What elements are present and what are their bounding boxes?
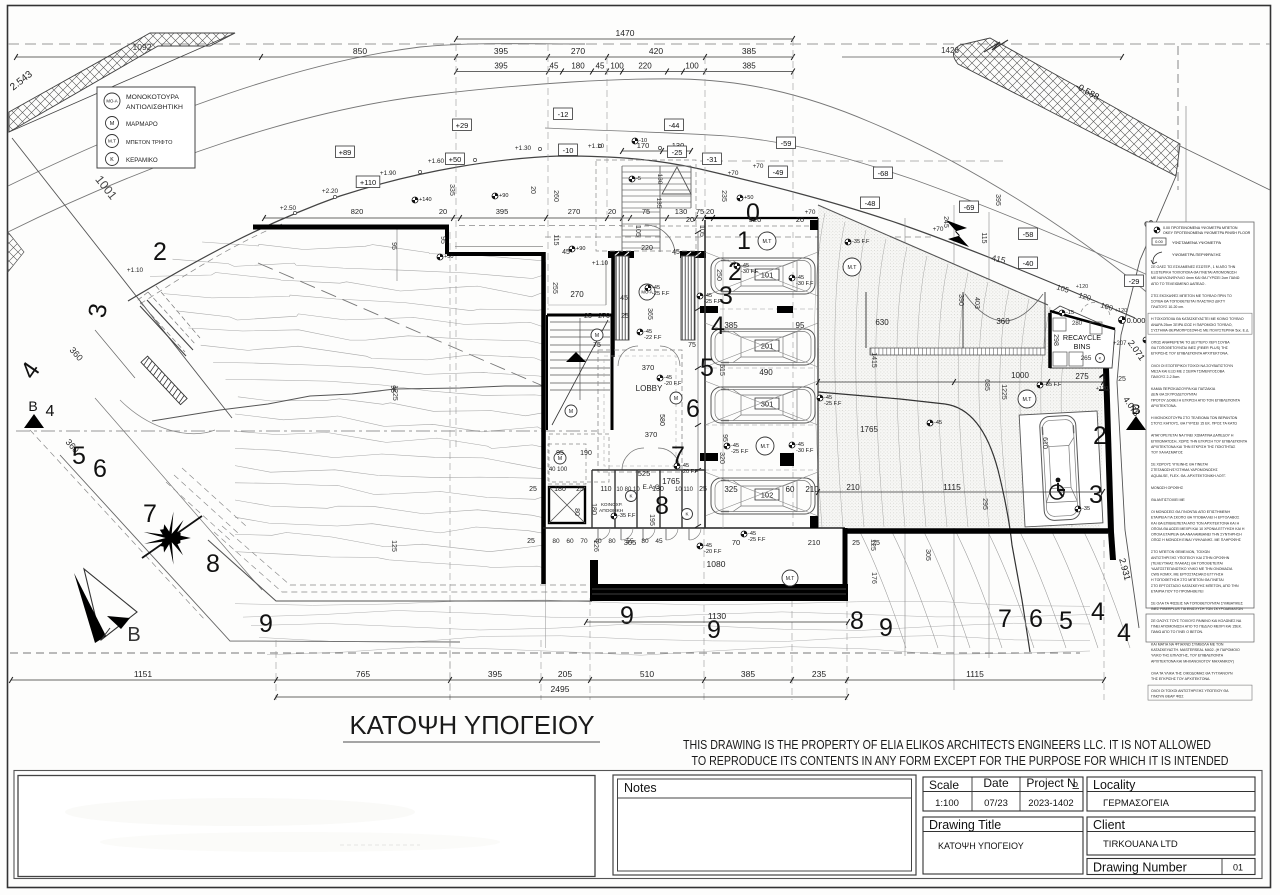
- svg-text:+1.10: +1.10: [127, 267, 144, 274]
- svg-text:ΚΟΙΝΟΧΡ.: ΚΟΙΝΟΧΡ.: [601, 502, 622, 507]
- svg-text:1765: 1765: [860, 425, 878, 434]
- svg-text:295: 295: [981, 498, 988, 510]
- svg-text:-25 F.F: -25 F.F: [748, 537, 766, 543]
- svg-text:M: M: [595, 333, 599, 339]
- svg-text:370: 370: [642, 363, 655, 372]
- svg-text:45: 45: [620, 295, 628, 302]
- svg-text:+70: +70: [753, 163, 764, 170]
- svg-text:210: 210: [846, 483, 860, 492]
- svg-text:K: K: [1099, 355, 1102, 360]
- svg-text:MO-A: MO-A: [106, 99, 117, 104]
- svg-text:220: 220: [641, 245, 653, 252]
- svg-text:M: M: [674, 396, 678, 402]
- svg-text:1: 1: [1097, 369, 1111, 397]
- svg-text:4: 4: [711, 312, 725, 340]
- svg-text:520: 520: [749, 215, 762, 224]
- svg-text:1225: 1225: [1000, 384, 1007, 400]
- svg-text:ΓΕΡΜΑΣΟΓΕΙΑ: ΓΕΡΜΑΣΟΓΕΙΑ: [1103, 798, 1170, 809]
- svg-text:95: 95: [390, 242, 397, 250]
- svg-text:490: 490: [759, 368, 773, 377]
- svg-text:ΑΡΧΙΤΕΚΤΟΝΑ.: ΑΡΧΙΤΕΚΤΟΝΑ.: [1151, 404, 1177, 408]
- svg-text:ΓΙΝΟΥΝ ΘΕΑΡ ΦΩΣ: ΓΙΝΟΥΝ ΘΕΑΡ ΦΩΣ: [1151, 695, 1184, 699]
- svg-text:75: 75: [696, 207, 704, 216]
- svg-text:+1.30: +1.30: [515, 145, 532, 152]
- svg-text:395: 395: [496, 207, 509, 216]
- svg-text:1151: 1151: [134, 669, 153, 679]
- svg-text:1225: 1225: [391, 385, 398, 401]
- svg-text:5: 5: [72, 442, 86, 470]
- svg-text:+90: +90: [499, 193, 509, 199]
- svg-text:BINS: BINS: [1074, 342, 1091, 351]
- svg-text:ΟΠΩΣ Η ΜΟΝΩΣΗ ΕΙΝΑΙ ΥΨΗΛΑΝΗΣ.: ΟΠΩΣ Η ΜΟΝΩΣΗ ΕΙΝΑΙ ΥΨΗΛΑΝΗΣ. ΜΕ ΠΛΗΡΟΦΗ…: [1151, 538, 1242, 542]
- svg-text:ΣΤΙΣ ΕΚΣΚΑΦΕΣ ΜΠΕΤΟΝ ΜΕ ΤΟΥΒΛ: ΣΤΙΣ ΕΚΣΚΑΦΕΣ ΜΠΕΤΟΝ ΜΕ ΤΟΥΒΛΟ ΠΡΙΝ ΤΟ: [1151, 294, 1232, 298]
- svg-text:M.T: M.T: [108, 139, 116, 144]
- svg-text:115: 115: [980, 232, 987, 243]
- svg-text:ΠΡΟΤΟΥ ΔΟΘΕΙ Η ΕΓΚΡΙΣΗ ΑΠΟ ΤΟ: ΠΡΟΤΟΥ ΔΟΘΕΙ Η ΕΓΚΡΙΣΗ ΑΠΟ ΤΟΝ ΕΠΙΒΛΕΠΟΝ…: [1151, 398, 1241, 402]
- svg-text:180: 180: [590, 503, 597, 515]
- svg-text:ΤΗΣ ΕΓΚΡΙΣΗΣ ΤΟΥ ΑΡΧΙΤΕΚΤΟΝΑ.: ΤΗΣ ΕΓΚΡΙΣΗΣ ΤΟΥ ΑΡΧΙΤΕΚΤΟΝΑ.: [1151, 677, 1210, 681]
- svg-text:270: 270: [568, 207, 581, 216]
- svg-text:ΜΟΝΟΚΟΤΟΥΡΑ: ΜΟΝΟΚΟΤΟΥΡΑ: [126, 94, 179, 101]
- svg-text:20: 20: [686, 215, 694, 224]
- svg-text:105: 105: [634, 225, 641, 237]
- svg-text:ΣΤΟ ΜΠΕΤΟΝ ΘΕΜΕΛΙΩΝ, ΤΟΙΧΩΝ: ΣΤΟ ΜΠΕΤΟΝ ΘΕΜΕΛΙΩΝ, ΤΟΙΧΩΝ: [1151, 550, 1210, 554]
- svg-text:80: 80: [552, 538, 560, 545]
- svg-text:390: 390: [957, 294, 964, 306]
- svg-text:-22 F.F: -22 F.F: [644, 335, 662, 341]
- svg-text:-68: -68: [878, 169, 889, 178]
- svg-text:ΙΝΕΣ FIBERPLUS ΓΙΑ ΕΝΙΣΧΥΣΗ: ΙΝΕΣ FIBERPLUS ΓΙΑ ΕΝΙΣΧΥΣΗ ΤΩΝ ΣΚΥΡΟΔΕΜ…: [1151, 607, 1243, 611]
- svg-text:+140: +140: [419, 197, 432, 203]
- svg-text:B: B: [28, 398, 37, 414]
- svg-text:176: 176: [870, 572, 877, 584]
- svg-text:395: 395: [494, 62, 508, 71]
- svg-text:20: 20: [608, 207, 616, 216]
- svg-text:360: 360: [996, 317, 1010, 326]
- svg-text:Scale: Scale: [929, 778, 959, 792]
- svg-text:B: B: [1131, 401, 1140, 417]
- svg-text:ΑΡΧΙΤΕΚΤΟΝΑ ΚΑΙ ΤΗΝ ΕΓΚΡΙΣΗ ΤΗ: ΑΡΧΙΤΕΚΤΟΝΑ ΚΑΙ ΤΗΝ ΕΓΚΡΙΣΗ ΤΗΣ ΠΟΙΟΤΗΤΑ…: [1151, 445, 1236, 449]
- svg-text:ΘΑ ΑΝΤΙΣΤΟΙΧΕΙ ΜΕ: ΘΑ ΑΝΤΙΣΤΟΙΧΕΙ ΜΕ: [1151, 498, 1185, 502]
- svg-text:-58: -58: [1023, 230, 1034, 239]
- svg-text:ΣΕ ΟΛΟΥΣ ΤΟΥΣ ΤΟΙΧΟΥΣ ΡΑΙΝΙΝ: ΣΕ ΟΛΟΥΣ ΤΟΥΣ ΤΟΙΧΟΥΣ ΡΑΙΝΙΝΟ ΚΑΙ ΚΟΛΩΝΕ…: [1151, 619, 1242, 623]
- svg-text:ΟΠΟΙΑ ΘΑ ΔΩΣΕΙ ΜΕΧΡΙ ΚΑΙ 10 ΧΡ: ΟΠΟΙΑ ΘΑ ΔΩΣΕΙ ΜΕΧΡΙ ΚΑΙ 10 ΧΡΟΝΙΑ ΕΓΓΥΗ…: [1151, 527, 1245, 531]
- svg-text:8: 8: [850, 607, 864, 635]
- svg-text:25: 25: [1118, 376, 1126, 383]
- svg-text:8: 8: [655, 492, 669, 520]
- svg-text:25: 25: [529, 486, 537, 493]
- svg-text:100: 100: [685, 62, 699, 71]
- svg-text:ΠΑΧΟΥΣ 2-2.5cm.: ΠΑΧΟΥΣ 2-2.5cm.: [1151, 375, 1180, 379]
- svg-text:-25 F.F: -25 F.F: [652, 291, 670, 297]
- svg-text:ΟΙ ΜΟΝΩΣΕΙΣ ΘΑ ΓΙΝΟΝΤΑΙ ΑΠΟ ΕΠ: ΟΙ ΜΟΝΩΣΕΙΣ ΘΑ ΓΙΝΟΝΤΑΙ ΑΠΟ ΕΠΙΣΤΗΜΕΝΗ: [1151, 510, 1230, 514]
- svg-text:ΣΕ ΟΛΕΣ ΤΙΣ ΕΣΚΑΜΕΝΕΣ ΕΣΩΤΕΡ.,: ΣΕ ΟΛΕΣ ΤΙΣ ΕΣΚΑΜΕΝΕΣ ΕΣΩΤΕΡ., 1 Μ ΑΠΟ Τ…: [1151, 265, 1236, 269]
- svg-text:+89: +89: [339, 148, 352, 157]
- svg-text:20: 20: [706, 207, 714, 216]
- svg-text:TO REPRODUCE ITS CONTENTS IN A: TO REPRODUCE ITS CONTENTS IN ANY FORM EX…: [692, 753, 1229, 768]
- svg-text:ΥΛΙΚΟ ΤΗΣ ΕΠΙΛΟΓΗΣ, ΤΟΥ ΕΠΙΒ: ΥΛΙΚΟ ΤΗΣ ΕΠΙΛΟΓΗΣ, ΤΟΥ ΕΠΙΒΛΕΠΟΝΤΑ: [1151, 654, 1224, 658]
- svg-text:+1.10: +1.10: [592, 260, 609, 267]
- svg-text:0.00 ΠΡΟΤΕΙΝΟΜΕΝΑ ΥΨΟΜΕΤΡΑ ΜΠ: 0.00 ΠΡΟΤΕΙΝΟΜΕΝΑ ΥΨΟΜΕΤΡΑ ΜΠΕΤΟΝ: [1163, 226, 1238, 230]
- svg-text:1080: 1080: [707, 559, 726, 569]
- svg-text:75: 75: [642, 207, 650, 216]
- svg-text:95: 95: [556, 450, 564, 457]
- svg-text:370: 370: [645, 430, 658, 439]
- svg-text:100: 100: [610, 62, 624, 71]
- svg-text:40 100: 40 100: [549, 467, 568, 473]
- svg-text:3: 3: [1089, 481, 1103, 509]
- svg-text:510: 510: [640, 669, 654, 679]
- svg-text:20: 20: [796, 215, 804, 224]
- svg-text:1426: 1426: [941, 46, 959, 55]
- svg-text:70: 70: [580, 538, 588, 545]
- svg-text:1000: 1000: [1011, 371, 1029, 380]
- svg-text:ΘΑ ΤΟΠΟΘΕΤΟΥΝΤΑΙ ΙΝΕΣ (FIBER P: ΘΑ ΤΟΠΟΘΕΤΟΥΝΤΑΙ ΙΝΕΣ (FIBER PLUS) ΤΗΣ: [1151, 346, 1229, 350]
- svg-text:70: 70: [732, 538, 740, 547]
- svg-text:20: 20: [529, 186, 536, 194]
- svg-text:ΕΓΚΡΙΣΗΣ ΤΟΥ ΕΠΙΒΛΕΠΟΝΤΑ ΑΡΧΙΤ: ΕΓΚΡΙΣΗΣ ΤΟΥ ΕΠΙΒΛΕΠΟΝΤΑ ΑΡΧΙΤΕΚΤΟΝΑ.: [1151, 352, 1228, 356]
- svg-text:-25 F.F: -25 F.F: [824, 401, 842, 407]
- svg-text:+90: +90: [576, 246, 586, 252]
- svg-text:ΠΑΝΩ ΑΠΟ ΤΟ ΓΙΝΕΙ Ο ΒΕΤΟΝ.: ΠΑΝΩ ΑΠΟ ΤΟ ΓΙΝΕΙ Ο ΒΕΤΟΝ.: [1151, 630, 1203, 634]
- svg-text:4: 4: [1117, 619, 1131, 647]
- svg-text:45: 45: [562, 249, 570, 256]
- svg-text:-48: -48: [865, 199, 876, 208]
- svg-text:6: 6: [93, 455, 107, 483]
- svg-text:5: 5: [1059, 607, 1073, 635]
- svg-text:280: 280: [1072, 321, 1083, 327]
- svg-text:3: 3: [719, 282, 733, 310]
- svg-text:110: 110: [600, 486, 611, 493]
- svg-text:685: 685: [983, 379, 990, 391]
- svg-text:403: 403: [973, 297, 980, 309]
- svg-text:01: 01: [1233, 863, 1243, 873]
- svg-text:1765: 1765: [662, 477, 680, 486]
- svg-text:ΑΠΑΓΟΡΕΥΕΤΑΙ ΝΑ ΓΙΝΕΙ ΧΩΜΑΤΙΝΑ: ΑΠΑΓΟΡΕΥΕΤΑΙ ΝΑ ΓΙΝΕΙ ΧΩΜΑΤΙΝΑ ΔΑΠΕΔΟΥ Η: [1151, 434, 1234, 438]
- svg-text:385: 385: [742, 62, 756, 71]
- svg-text:Drawing Title: Drawing Title: [929, 818, 1001, 832]
- svg-text:ΕΞΩΤΕΡΙΚΗ ΤΟΙΧΟΠΟΙΙΑ ΘΑ ΓΙΝΕΤΑ: ΕΞΩΤΕΡΙΚΗ ΤΟΙΧΟΠΟΙΙΑ ΘΑ ΓΙΝΕΤΑΙ ΑΠΟΜΟΝΩΣ…: [1151, 271, 1237, 275]
- svg-text:630: 630: [875, 318, 889, 327]
- svg-text:ΑΠΟ ΤΟ ΤΕΛΕΙΩΜΕΝΟ ΔΑΠΕΔΟ .: ΑΠΟ ΤΟ ΤΕΛΕΙΩΜΕΝΟ ΔΑΠΕΔΟ .: [1151, 282, 1206, 286]
- svg-text:ΣΤΟ ΕΡΓΟΣΤΑΣΙΟ ΚΑΤΑΣΚΕΥΗΣ ΜΠΕΤ: ΣΤΟ ΕΡΓΟΣΤΑΣΙΟ ΚΑΤΑΣΚΕΥΗΣ ΜΠΕΤΟΝ, ΑΠΟ ΤΗ…: [1151, 584, 1239, 588]
- svg-text:180: 180: [554, 486, 566, 493]
- svg-text:1115: 1115: [943, 482, 961, 492]
- svg-text:80: 80: [573, 508, 580, 516]
- svg-text:ΚΑΙ ΘΑ ΕΠΙΒΛΕΠΕΤΑΙ ΑΠΟ ΤΟΝ ΑΡΧ: ΚΑΙ ΘΑ ΕΠΙΒΛΕΠΕΤΑΙ ΑΠΟ ΤΟΝ ΑΡΧΙΤΕΚΤΟΝΑ Κ…: [1151, 521, 1240, 525]
- svg-text:1: 1: [737, 227, 751, 255]
- svg-text:250: 250: [715, 269, 722, 281]
- svg-text:245: 245: [942, 216, 949, 228]
- svg-text:ΜΠΕΤΟΝ ΤΡΙΦΤΟ: ΜΠΕΤΟΝ ΤΡΙΦΤΟ: [126, 140, 173, 146]
- svg-text:2: 2: [1093, 422, 1107, 450]
- svg-text:-40: -40: [1023, 259, 1034, 268]
- svg-text:+50: +50: [744, 195, 754, 201]
- svg-text:385: 385: [741, 669, 755, 679]
- svg-text:Locality: Locality: [1093, 778, 1136, 792]
- svg-text:-35 F.F: -35 F.F: [852, 239, 870, 245]
- svg-text:+50: +50: [449, 155, 462, 164]
- svg-text:7: 7: [143, 500, 157, 528]
- svg-text:-44: -44: [669, 121, 680, 130]
- svg-text:305: 305: [624, 538, 637, 547]
- svg-text:275: 275: [1075, 372, 1089, 381]
- svg-text:+1.60: +1.60: [428, 158, 445, 165]
- svg-text:305: 305: [924, 549, 931, 561]
- svg-text:ΜΑΡΜΑΡΟ: ΜΑΡΜΑΡΟ: [126, 121, 158, 128]
- svg-text:4: 4: [1091, 598, 1105, 626]
- svg-text:M.T: M.T: [848, 265, 858, 271]
- svg-text:+1.90: +1.90: [380, 170, 397, 177]
- svg-text:75: 75: [688, 342, 696, 349]
- svg-text:Project N: Project N: [1026, 776, 1075, 790]
- svg-text:ΟΚΕΥ ΠΡΟΤΕΙΝΟΜΕΝΑ ΥΨΟΜΕΤΡΑ ΡΙ: ΟΚΕΥ ΠΡΟΤΕΙΝΟΜΕΝΑ ΥΨΟΜΕΤΡΑ ΡΙΝΙSΗ FLOOR: [1163, 231, 1251, 235]
- svg-text:THIS DRAWING IS THE PROPERTY O: THIS DRAWING IS THE PROPERTY OF ELIA ELI…: [683, 737, 1211, 752]
- svg-text:+110: +110: [360, 178, 376, 187]
- svg-text:95: 95: [796, 321, 805, 330]
- svg-text:9: 9: [879, 614, 893, 642]
- svg-text:235: 235: [812, 669, 826, 679]
- svg-text:0.000: 0.000: [1127, 316, 1146, 325]
- svg-text:270: 270: [598, 313, 610, 320]
- svg-text:-20 F.F: -20 F.F: [704, 549, 722, 555]
- svg-text:M.T: M.T: [763, 239, 773, 245]
- svg-text:ΣΤΟΥΣ ΚΗΠΟΥΣ, ΘΑ ΓΥΡΙΣΕΙ 15 ΕΚ: ΣΤΟΥΣ ΚΗΠΟΥΣ, ΘΑ ΓΥΡΙΣΕΙ 15 ΕΚ. ΠΡΟΣ ΤΑ …: [1151, 422, 1237, 426]
- svg-text:395: 395: [494, 46, 508, 56]
- svg-text:+2.50: +2.50: [280, 205, 297, 212]
- svg-text:270: 270: [570, 290, 584, 299]
- svg-text:-10: -10: [639, 138, 647, 144]
- svg-text:1:100: 1:100: [935, 798, 959, 809]
- svg-text:25: 25: [699, 486, 707, 493]
- svg-text:LOBBY: LOBBY: [636, 384, 663, 393]
- svg-text:125: 125: [869, 539, 876, 551]
- svg-text:105: 105: [698, 225, 705, 237]
- svg-text:ΟΠΩΣ ΑΝΑΦΕΡΕΤΑΙ ΤΟ ΔΕΥΤΕΡΟ ΧΕΡ: ΟΠΩΣ ΑΝΑΦΕΡΕΤΑΙ ΤΟ ΔΕΥΤΕΡΟ ΧΕΡΙ ΣΟΥΒΑ: [1151, 341, 1230, 345]
- svg-text:-5: -5: [636, 176, 641, 182]
- svg-text:180: 180: [571, 62, 585, 71]
- svg-text:325: 325: [724, 485, 738, 494]
- svg-text:1130: 1130: [708, 611, 727, 621]
- svg-text:95: 95: [721, 434, 728, 442]
- svg-text:07/23: 07/23: [984, 798, 1008, 809]
- svg-text:235: 235: [720, 190, 727, 202]
- svg-text:Η ΤΟΠΟΘΕΤΗΣΗ ΣΤΟ ΜΠΕΤΟΝ ΘΑ ΓΙΝ: Η ΤΟΠΟΘΕΤΗΣΗ ΣΤΟ ΜΠΕΤΟΝ ΘΑ ΓΙΝΕΤΑΙ: [1151, 578, 1224, 582]
- svg-text:2495: 2495: [551, 684, 570, 694]
- svg-text:4: 4: [46, 403, 55, 420]
- svg-text:ΥΦΙΣΤΑΜΕΝΑ ΥΨΟΜΕΤΡΑ: ΥΦΙΣΤΑΜΕΝΑ ΥΨΟΜΕΤΡΑ: [1172, 240, 1221, 245]
- svg-text:9: 9: [620, 602, 634, 630]
- svg-text:820: 820: [351, 207, 364, 216]
- svg-text:10 110: 10 110: [675, 487, 694, 493]
- svg-text:60: 60: [566, 538, 574, 545]
- svg-text:80: 80: [641, 538, 649, 545]
- svg-text:M.T: M.T: [761, 444, 771, 450]
- svg-text:420: 420: [649, 46, 663, 56]
- svg-text:385: 385: [724, 321, 738, 330]
- svg-text:ΚΕΡΑΜΙΚΟ: ΚΕΡΑΜΙΚΟ: [126, 157, 158, 164]
- svg-text:5: 5: [700, 354, 714, 382]
- svg-text:2: 2: [153, 238, 167, 266]
- svg-text:ΣΥΣΤΗΜΑ ΘΕΡΜΟΠΡΟΣΟΨΗΣ ΜΕ ΠΟΛΥΣ: ΣΥΣΤΗΜΑ ΘΕΡΜΟΠΡΟΣΟΨΗΣ ΜΕ ΠΟΛΥΣΤΕΡΙΝΗ 5εκ…: [1151, 328, 1249, 332]
- svg-text:-30 F.F: -30 F.F: [796, 281, 814, 287]
- svg-text:190: 190: [580, 450, 592, 457]
- svg-text:M: M: [569, 409, 573, 415]
- svg-text:ΑΡΧΙΤΕΚΤΟΝΑ ΚΑΙ ΜΗΧΑΝΟΛΟΓΟΥ ΜΗ: ΑΡΧΙΤΕΚΤΟΝΑ ΚΑΙ ΜΗΧΑΝΟΛΟΓΟΥ ΜΗΧΑΝΙΚΟΥ): [1151, 659, 1234, 663]
- svg-text:125: 125: [390, 540, 397, 552]
- svg-text:ΟΠΟΙΑ ΕΤΑΙΡΕΙΑ ΘΑ ΑΝΑΛΑΜΒΑΝΕΙ: ΟΠΟΙΑ ΕΤΑΙΡΕΙΑ ΘΑ ΑΝΑΛΑΜΒΑΝΕΙ ΤΗΝ ΣΥΝΤΗΡ…: [1151, 533, 1242, 537]
- svg-text:M: M: [110, 121, 115, 127]
- svg-text:130: 130: [656, 174, 663, 185]
- svg-text:10 80 10: 10 80 10: [616, 487, 640, 493]
- svg-text:+120: +120: [1096, 386, 1108, 392]
- svg-text:850: 850: [353, 46, 367, 56]
- svg-text:ΥΔΑΤΟΣΤΕΓΑΝΩΤΙΚΟ ΥΛΙΚΟ ΜΕ ΤΗΝ: ΥΔΑΤΟΣΤΕΓΑΝΩΤΙΚΟ ΥΛΙΚΟ ΜΕ ΤΗΝ ΟΝΟΜΑΣΙΑ: [1151, 567, 1233, 571]
- svg-text:45: 45: [550, 62, 559, 71]
- svg-text:+207: +207: [1113, 341, 1127, 347]
- svg-text:130: 130: [652, 486, 664, 493]
- svg-text:ΟΛΟΙ ΟΙ ΤΟΙΧΟΙ ΑΝΤΙΣΤΗΡΙΞΗΣ ΥΠ: ΟΛΟΙ ΟΙ ΤΟΙΧΟΙ ΑΝΤΙΣΤΗΡΙΞΗΣ ΥΠΟΓΕΙΟΥ ΘΑ: [1151, 689, 1229, 693]
- svg-text:-25 F.F: -25 F.F: [731, 449, 749, 455]
- svg-text:-35: -35: [1082, 506, 1090, 512]
- svg-text:-20 F.F: -20 F.F: [681, 469, 699, 475]
- svg-text:ΣΕ ΧΩΡΟΥΣ ΥΓΙΕΙΝΗΣ ΘΑ ΓΙΝΕΤΑΙ: ΣΕ ΧΩΡΟΥΣ ΥΓΙΕΙΝΗΣ ΘΑ ΓΙΝΕΤΑΙ: [1151, 463, 1208, 467]
- svg-text:ΣΕ ΟΛΑ ΤΑ ΦΩΣΕΙΣ ΝΑ ΤΟΠΟΘΕΤΟΥΝ: ΣΕ ΟΛΑ ΤΑ ΦΩΣΕΙΣ ΝΑ ΤΟΠΟΘΕΤΟΥΝΤΑΙ ΣΥΜΒΑΤ…: [1151, 602, 1244, 606]
- svg-text:320: 320: [718, 452, 725, 464]
- svg-text:ΟΛΑ ΤΑ ΥΛΙΚΑ ΤΗΣ ΟΙΚΟΔΟΜΗΣ Θ: ΟΛΑ ΤΑ ΥΛΙΚΑ ΤΗΣ ΟΙΚΟΔΟΜΗΣ ΘΑ ΤΥΓΧΑΝΟΥΝ: [1151, 671, 1233, 675]
- svg-text:25: 25: [584, 313, 592, 320]
- svg-text:ΚΑΤΑΣΚΕΥΑΣΤΗ. MASTERSEAL Μ402: ΚΑΤΑΣΚΕΥΑΣΤΗ. MASTERSEAL Μ402. (Η ΠΑΡΟΜΟ…: [1151, 648, 1240, 652]
- svg-text:20: 20: [439, 207, 447, 216]
- svg-text:CWS ΚΟΜΙΧ. ΜΕ ΕΡΓΟΣΤΑΣΙΑΚΟ ΕΓ: CWS ΚΟΜΙΧ. ΜΕ ΕΡΓΟΣΤΑΣΙΑΚΟ ΕΓΓΥΗΣΗ: [1151, 573, 1224, 577]
- svg-text:195: 195: [648, 514, 655, 526]
- svg-text:+2.20: +2.20: [322, 188, 339, 195]
- svg-text:o: o: [1073, 779, 1078, 789]
- svg-text:(ΤΕΛΕΥΤΑΙΑΣ ΠΛΑΚΑΣ) ΘΑ ΤΟΠΟΘΕ: (ΤΕΛΕΥΤΑΙΑΣ ΠΛΑΚΑΣ) ΘΑ ΤΟΠΟΘΕΤΕΙΤΑΙ: [1151, 561, 1223, 565]
- svg-text:ΑΝΤΙΣΤΗΡΙΞΗΣ ΥΠΟΓΕΙΟΥ ΚΑΙ ΣΤΗΝ: ΑΝΤΙΣΤΗΡΙΞΗΣ ΥΠΟΓΕΙΟΥ ΚΑΙ ΣΤΗΝ ΟΡΟΦΗΝ: [1151, 556, 1230, 560]
- svg-text:80: 80: [608, 538, 616, 545]
- svg-text:9: 9: [259, 610, 273, 638]
- svg-text:Η ΤΟΙΧΟΠΟΙΙΑ ΘΑ ΚΑΤΑΣΚΕΥΑΣΤΕΙ: Η ΤΟΙΧΟΠΟΙΙΑ ΘΑ ΚΑΤΑΣΚΕΥΑΣΤΕΙ ΜΕ ΚΟΙΝΟ Τ…: [1151, 317, 1244, 321]
- svg-text:395: 395: [994, 194, 1001, 206]
- svg-text:+1.10: +1.10: [588, 143, 605, 150]
- svg-text:B: B: [127, 624, 140, 646]
- svg-text:Notes: Notes: [624, 781, 657, 795]
- svg-text:265: 265: [1081, 355, 1092, 362]
- svg-text:-45: -45: [934, 420, 942, 426]
- svg-text:210: 210: [808, 538, 821, 547]
- svg-text:7: 7: [998, 605, 1012, 633]
- svg-text:25: 25: [852, 540, 860, 547]
- svg-text:0.00: 0.00: [1155, 239, 1164, 244]
- svg-text:+120: +120: [1076, 284, 1088, 290]
- svg-text:-12: -12: [558, 110, 569, 119]
- svg-text:ΥΨΟΜΕΤΡΑ ΠΕΡΙΦΡΑΞΗΣ: ΥΨΟΜΕΤΡΑ ΠΕΡΙΦΡΑΞΗΣ: [1172, 252, 1222, 257]
- svg-text:525: 525: [638, 469, 651, 478]
- svg-text:365: 365: [646, 308, 653, 320]
- svg-text:-35 F.F: -35 F.F: [618, 513, 636, 519]
- svg-text:580: 580: [658, 414, 665, 426]
- svg-text:6: 6: [1029, 605, 1043, 633]
- svg-text:ΜΕ ΝΑΥΛΟΝ/ΦΥΛΛΟ 4mm ΚΑΙ ΘΑ ΓΥΡ: ΜΕ ΝΑΥΛΟΝ/ΦΥΛΛΟ 4mm ΚΑΙ ΘΑ ΓΥΡΙΣΕΙ 2cm Π…: [1151, 276, 1240, 280]
- svg-text:ΜΕΣΑ ΚΑΙ ΕΞΩ ΜΕ 2 ΣΕΙΡΑ ΤΣΙΜΕΝ: ΜΕΣΑ ΚΑΙ ΕΞΩ ΜΕ 2 ΣΕΙΡΑ ΤΣΙΜΕΝΤΟΣΟΒΑ: [1151, 369, 1225, 373]
- svg-text:-25: -25: [672, 148, 683, 157]
- svg-text:Drawing Number: Drawing Number: [1093, 861, 1187, 875]
- svg-text:45: 45: [672, 249, 680, 256]
- svg-text:+29: +29: [456, 121, 469, 130]
- svg-text:ΚΑΤΟΨΗ ΥΠΟΓΕΙΟΥ: ΚΑΤΟΨΗ ΥΠΟΓΕΙΟΥ: [938, 841, 1024, 851]
- svg-text:2023-1402: 2023-1402: [1028, 798, 1073, 809]
- svg-text:ΠΛΑΤΟΥΣ 10-20 cm.: ΠΛΑΤΟΥΣ 10-20 cm.: [1151, 305, 1184, 309]
- svg-text:Client: Client: [1093, 818, 1125, 832]
- svg-text:ΣΟΥΒΑ ΘΑ ΤΟΠΟΘΕΤΕΙΤΑΙ ΠΛΑΣΤΙΚΟ: ΣΟΥΒΑ ΘΑ ΤΟΠΟΘΕΤΕΙΤΑΙ ΠΛΑΣΤΙΚΟ ΔΙΚΤΥ: [1151, 300, 1226, 304]
- svg-text:M.T: M.T: [786, 576, 795, 582]
- svg-text:M.T: M.T: [1023, 397, 1033, 403]
- svg-text:ΣΤΕΓΑΝΩΣΗ/ΣΥΣΤΗΜΑ ΥΔΡΟΜΟΝΩΣΗΣ: ΣΤΕΓΑΝΩΣΗ/ΣΥΣΤΗΜΑ ΥΔΡΟΜΟΝΩΣΗΣ: [1151, 468, 1218, 472]
- svg-text:ΑΝΔΡΑ 25cm ΣΕΙΡΑ ΙΣΩΣ Η ΠΑΡΟΜΟ: ΑΝΔΡΑ 25cm ΣΕΙΡΑ ΙΣΩΣ Η ΠΑΡΟΜΟΙΟ ΤΟΥΒΛΟ,: [1151, 323, 1233, 327]
- svg-text:ΕΠΙΧΩΜΑΤΩΣΗ, ΧΩΡΙΣ ΤΗΝ ΕΓΚΡΙΣΗ: ΕΠΙΧΩΜΑΤΩΣΗ, ΧΩΡΙΣ ΤΗΝ ΕΓΚΡΙΣΗ ΤΟΥ ΕΠΙΒΛ…: [1151, 439, 1248, 443]
- svg-text:1415: 1415: [870, 352, 877, 368]
- svg-text:135: 135: [655, 198, 662, 209]
- svg-text:765: 765: [356, 669, 370, 679]
- svg-text:+70: +70: [805, 209, 816, 216]
- svg-text:-59: -59: [781, 139, 792, 148]
- svg-text:385: 385: [742, 46, 756, 56]
- svg-text:45: 45: [655, 538, 663, 545]
- svg-text:ΑΝΤΙΟΛΙΣΘΗΤΙΚΗ: ΑΝΤΙΟΛΙΣΘΗΤΙΚΗ: [126, 104, 183, 111]
- svg-text:-30 F.F: -30 F.F: [796, 448, 814, 454]
- svg-text:-25 F.F: -25 F.F: [704, 299, 722, 305]
- svg-text:270: 270: [571, 46, 585, 56]
- svg-text:205: 205: [558, 669, 572, 679]
- svg-text:AQUALSE, FLEX. ΘΑ. ΑΡΧΙΤΕΚΤΟΝΙ: AQUALSE, FLEX. ΘΑ. ΑΡΧΙΤΕΚΤΟΝΙΚΗ ΛΟΓΓ.: [1151, 474, 1226, 478]
- svg-text:-15: -15: [1066, 310, 1074, 316]
- svg-text:1470: 1470: [616, 28, 635, 38]
- svg-text:ΟΛΟΙ ΟΙ ΕΞΩΤΕΡΙΚΟΙ ΤΟΙΧΟΙ ΝΑ Σ: ΟΛΟΙ ΟΙ ΕΞΩΤΕΡΙΚΟΙ ΤΟΙΧΟΙ ΝΑ ΣΟΥΒΑΤΙΣΤΟΥ…: [1151, 364, 1233, 368]
- svg-text:335: 335: [448, 184, 455, 196]
- svg-text:1115: 1115: [966, 669, 984, 679]
- svg-text:ΕΤΑΙΡΙΑ ΠΟΥ ΤΟ ΠΡΟΜΗΘΕΥΕΙ: ΕΤΑΙΡΙΑ ΠΟΥ ΤΟ ΠΡΟΜΗΘΕΥΕΙ: [1151, 589, 1203, 593]
- svg-text:8: 8: [206, 550, 220, 578]
- svg-text:ΜΟΝΩΣΗ ΟΡΟΦΗΣ: ΜΟΝΩΣΗ ΟΡΟΦΗΣ: [1151, 486, 1184, 490]
- svg-text:+70: +70: [728, 170, 739, 177]
- svg-text:-20 F.F: -20 F.F: [664, 381, 682, 387]
- svg-text:ΚΑΤΟΨΗ ΥΠΟΓΕΙΟΥ: ΚΑΤΟΨΗ ΥΠΟΓΕΙΟΥ: [350, 710, 595, 740]
- svg-text:ΚΑΜΙΑ ΠΕΡΙΣΚΙΑΣΟΥΡΑ ΚΑΙ ΠΑΤΖΑ: ΚΑΜΙΑ ΠΕΡΙΣΚΙΑΣΟΥΡΑ ΚΑΙ ΠΑΤΖΑΚΙΑ: [1151, 387, 1216, 391]
- svg-text:45: 45: [596, 62, 605, 71]
- svg-text:298: 298: [1052, 334, 1059, 346]
- svg-text:ΔΕΝ ΘΑ ΣΚΥΡΟΔΕΤΟΥΝΤΑΙ: ΔΕΝ ΘΑ ΣΚΥΡΟΔΕΤΟΥΝΤΑΙ: [1151, 393, 1197, 397]
- svg-text:+120: +120: [1115, 308, 1127, 314]
- svg-text:25: 25: [527, 538, 535, 545]
- svg-text:226: 226: [592, 540, 599, 552]
- svg-text:-30 F.F: -30 F.F: [741, 269, 759, 275]
- svg-text:255: 255: [551, 282, 558, 294]
- svg-text:Date: Date: [983, 776, 1009, 790]
- svg-text:K: K: [110, 157, 114, 163]
- svg-text:25: 25: [576, 486, 584, 493]
- svg-text:-69: -69: [964, 203, 975, 212]
- svg-text:610: 610: [1041, 437, 1048, 449]
- svg-text:25: 25: [621, 313, 629, 320]
- svg-text:60: 60: [786, 485, 795, 494]
- svg-text:RECAYCLE: RECAYCLE: [1063, 333, 1101, 342]
- svg-text:ΕΤΑΙΡΕΙΑ ΓΙΑ ΣΚΟΠΟ ΘΑ ΥΠΟΒΑΛΛΕ: ΕΤΑΙΡΕΙΑ ΓΙΑ ΣΚΟΠΟ ΘΑ ΥΠΟΒΑΛΛΕΙ Η ΕΡΓΟΛΑ…: [1151, 516, 1240, 520]
- svg-text:6: 6: [686, 395, 700, 423]
- svg-text:1092: 1092: [133, 42, 152, 52]
- svg-text:-29: -29: [1129, 277, 1140, 286]
- svg-text:-31: -31: [707, 155, 718, 164]
